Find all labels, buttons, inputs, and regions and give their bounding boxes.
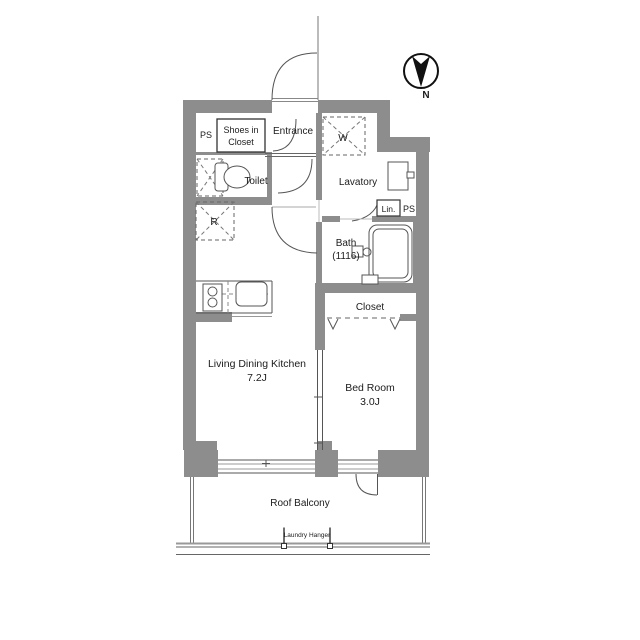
washer-label: W — [338, 133, 348, 144]
shoes-closet-label-1: Shoes in — [223, 125, 258, 135]
shoes-closet-box — [217, 119, 265, 152]
floor-plan: PS Shoes in Closet Entrance W Toilet Lav… — [0, 0, 640, 640]
shoes-closet-label-2: Closet — [228, 137, 254, 147]
windows — [218, 460, 378, 495]
wall-toilet-bottom — [196, 197, 270, 205]
bedroom-balcony-door — [338, 460, 378, 495]
bath-label-2: (1116) — [332, 251, 359, 262]
toilet-label: Toilet — [244, 176, 268, 187]
hanger-mark-left — [328, 319, 338, 329]
lavatory-vanity — [388, 162, 414, 190]
kitchen-counter — [196, 281, 272, 317]
laundry-hanger-label: Laundry Hanger — [284, 532, 331, 539]
wall-bath-top-left — [322, 216, 340, 222]
pier-bottom-mid — [315, 450, 338, 477]
ldk-door-arc — [272, 207, 317, 253]
wall-right-upper — [377, 100, 390, 140]
closet-label: Closet — [356, 302, 385, 313]
ldk-window — [218, 460, 315, 473]
sliding-door-ldk-bedroom — [314, 350, 323, 450]
pier-bottom-mid-step — [318, 441, 332, 450]
wall-central-upper — [316, 113, 322, 200]
wall-right-step — [377, 137, 430, 152]
kitchen-sink — [236, 282, 267, 306]
hanger-mark-right — [390, 319, 400, 329]
bath-label-1: Bath — [336, 238, 357, 249]
north-arrow — [412, 56, 430, 87]
closet-hanger-pole — [327, 318, 400, 329]
balcony-door-arc — [356, 474, 377, 495]
bathtub — [352, 225, 412, 284]
roof-balcony-label: Roof Balcony — [270, 498, 329, 509]
linen-label: Lin. — [382, 204, 396, 214]
ps-right-label: PS — [403, 204, 415, 214]
bath-step — [362, 275, 378, 284]
balcony — [176, 477, 430, 555]
entrance-door-arc — [272, 53, 317, 100]
ps-left-label: PS — [200, 130, 212, 140]
hall-door-arc — [278, 159, 312, 193]
bedroom-label-2: 3.0J — [360, 396, 380, 408]
lavatory-label: Lavatory — [339, 177, 377, 188]
pier-bottom-left — [184, 450, 218, 477]
toilet-fixture — [197, 159, 250, 196]
wall-right-main — [416, 152, 429, 450]
fridge-label: R — [210, 217, 217, 228]
wall-left — [183, 100, 196, 450]
north-label: N — [422, 90, 429, 101]
pier-bottom-left-step — [192, 441, 217, 450]
wall-bath-top-right — [372, 216, 429, 222]
ldk-label-1: Living Dining Kitchen — [208, 358, 306, 370]
wall-divider-upper — [315, 293, 325, 350]
entrance-label: Entrance — [273, 126, 313, 137]
compass-icon — [404, 54, 438, 88]
bedroom-label-1: Bed Room — [345, 382, 395, 394]
ldk-label-2: 7.2J — [247, 372, 267, 384]
wall-top-left — [183, 100, 272, 113]
pier-bottom-right — [378, 450, 429, 477]
wall-toilet-right — [267, 152, 272, 205]
wall-bath-right — [413, 216, 429, 293]
wall-closet-stub — [400, 314, 416, 321]
